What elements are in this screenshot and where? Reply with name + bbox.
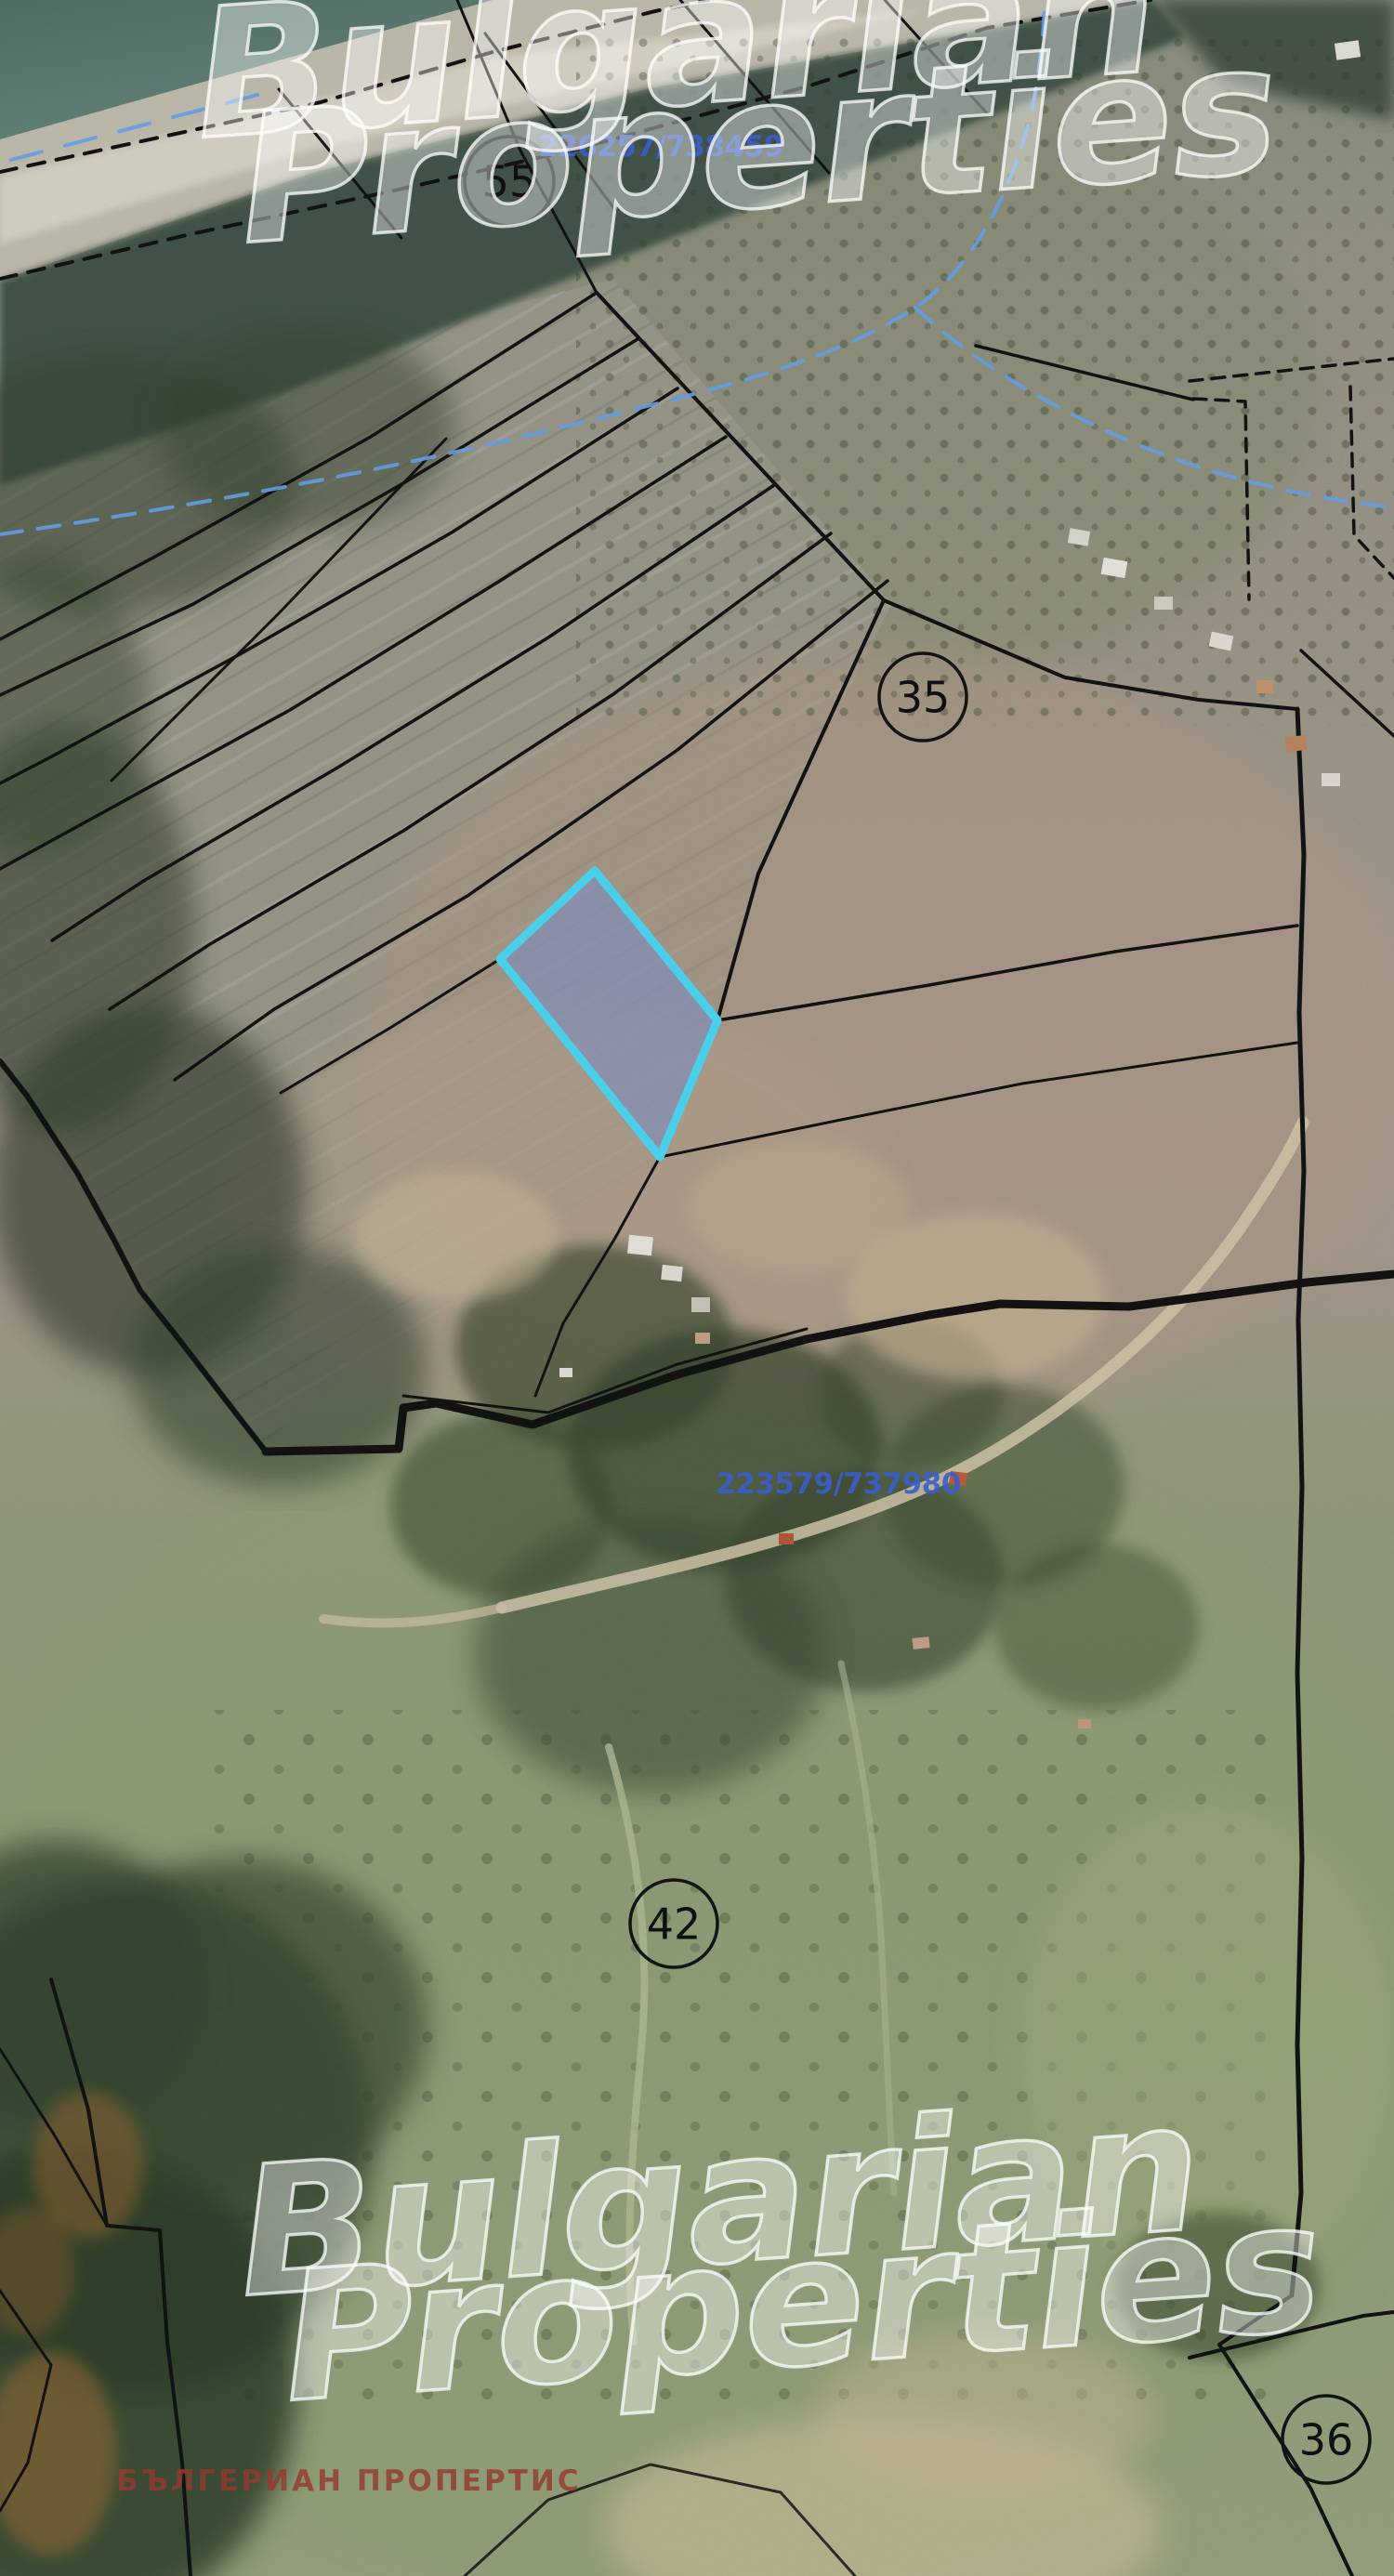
map-screenshot: 55354236 226257/738459223579/737980 Bulg… xyxy=(0,0,1394,2576)
satellite-map-canvas: 55354236 226257/738459223579/737980 xyxy=(0,0,1394,2576)
photo-grain-overlay xyxy=(0,0,1394,2576)
agency-name-label: БЪЛГЕРИАН ПРОПЕРТИС xyxy=(116,2464,582,2498)
